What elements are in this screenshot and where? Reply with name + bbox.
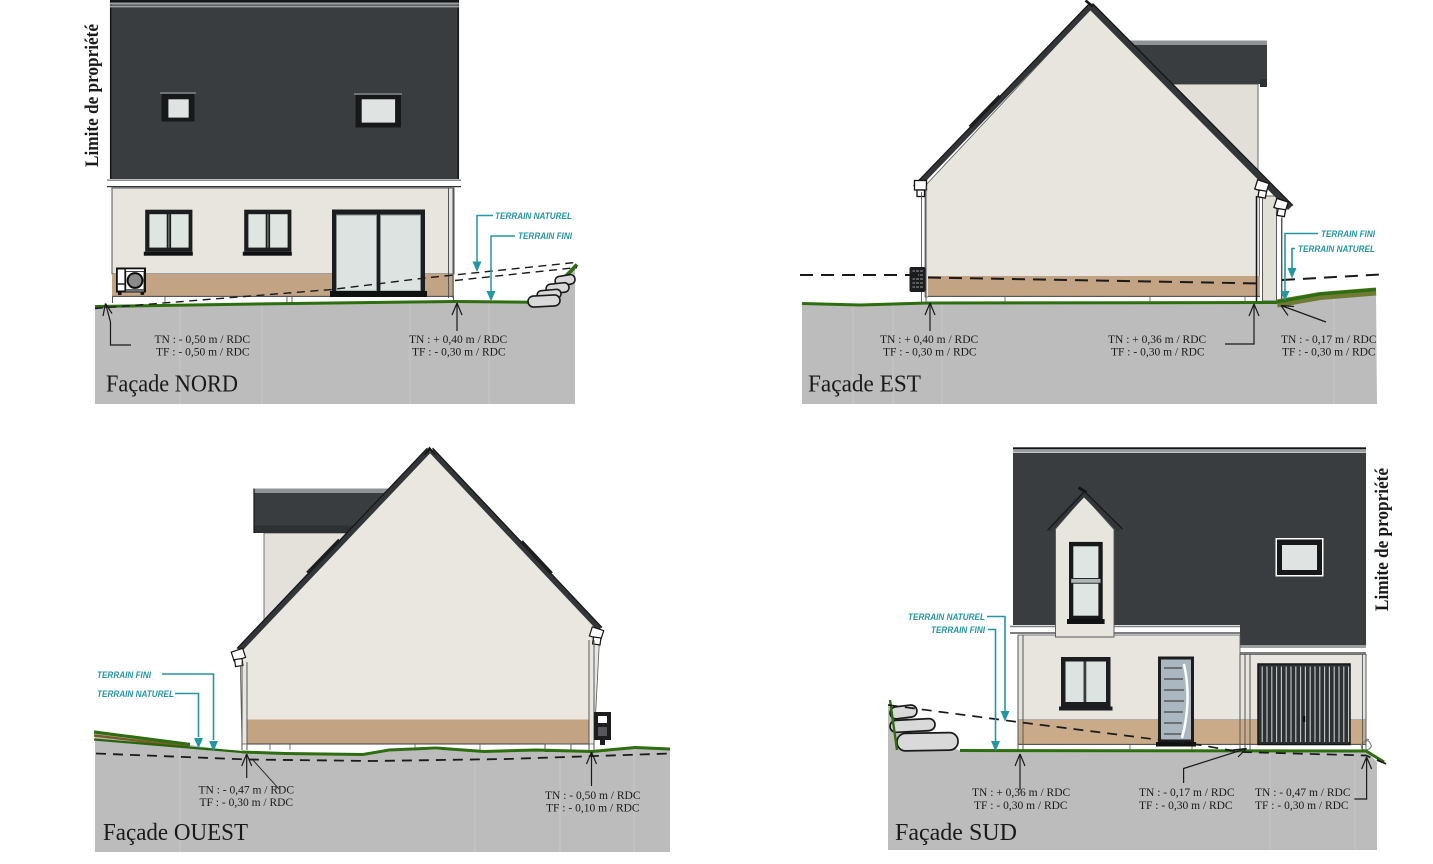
svg-text:TN : - 0,17 m / RDC: TN : - 0,17 m / RDC [1281,334,1377,346]
svg-text:TERRAIN FINI: TERRAIN FINI [1321,229,1375,240]
svg-text:TF : - 0,30 m / RDC: TF : - 0,30 m / RDC [1255,800,1349,812]
svg-text:Limite de propriété: Limite de propriété [83,24,103,167]
svg-text:TN : + 0,40 m / RDC: TN : + 0,40 m / RDC [409,334,508,346]
svg-text:TERRAIN FINI: TERRAIN FINI [97,670,151,681]
svg-text:TERRAIN NATUREL: TERRAIN NATUREL [1298,244,1375,255]
svg-text:TN : - 0,47 m / RDC: TN : - 0,47 m / RDC [1255,787,1351,799]
svg-text:TN : + 0,36 m / RDC: TN : + 0,36 m / RDC [1108,334,1207,346]
svg-text:TF : - 0,10 m / RDC: TF : - 0,10 m / RDC [546,803,640,815]
svg-text:TERRAIN NATUREL: TERRAIN NATUREL [495,211,572,222]
svg-text:Façade EST: Façade EST [808,372,921,398]
svg-text:TN : - 0,47 m / RDC: TN : - 0,47 m / RDC [199,785,295,797]
svg-text:Façade NORD: Façade NORD [106,372,238,398]
svg-text:Façade SUD: Façade SUD [895,820,1017,846]
svg-text:TF : - 0,30 m / RDC: TF : - 0,30 m / RDC [412,347,506,359]
svg-text:TERRAIN FINI: TERRAIN FINI [518,231,572,242]
svg-text:TERRAIN NATUREL: TERRAIN NATUREL [97,689,174,700]
svg-text:TF : - 0,50 m / RDC: TF : - 0,50 m / RDC [156,347,250,359]
svg-text:TF : - 0,30 m / RDC: TF : - 0,30 m / RDC [883,347,977,359]
svg-text:TN : - 0,50 m / RDC: TN : - 0,50 m / RDC [545,790,641,802]
svg-text:TERRAIN NATUREL: TERRAIN NATUREL [908,612,985,623]
svg-text:TN : - 0,17 m / RDC: TN : - 0,17 m / RDC [1139,787,1235,799]
svg-text:TF : - 0,30 m / RDC: TF : - 0,30 m / RDC [200,797,294,809]
svg-text:TF : - 0,30 m / RDC: TF : - 0,30 m / RDC [1111,347,1205,359]
svg-text:Façade OUEST: Façade OUEST [103,820,248,846]
svg-text:TN : + 0,36 m / RDC: TN : + 0,36 m / RDC [972,787,1071,799]
svg-text:TERRAIN FINI: TERRAIN FINI [931,625,985,636]
svg-text:TF : - 0,30 m / RDC: TF : - 0,30 m / RDC [1139,800,1233,812]
svg-text:TF : - 0,30 m / RDC: TF : - 0,30 m / RDC [1282,347,1376,359]
svg-text:Limite de propriété: Limite de propriété [1373,468,1393,611]
svg-text:TN : + 0,40 m / RDC: TN : + 0,40 m / RDC [880,334,979,346]
svg-text:TF : - 0,30 m / RDC: TF : - 0,30 m / RDC [974,800,1068,812]
svg-text:TN : - 0,50 m / RDC: TN : - 0,50 m / RDC [155,334,251,346]
